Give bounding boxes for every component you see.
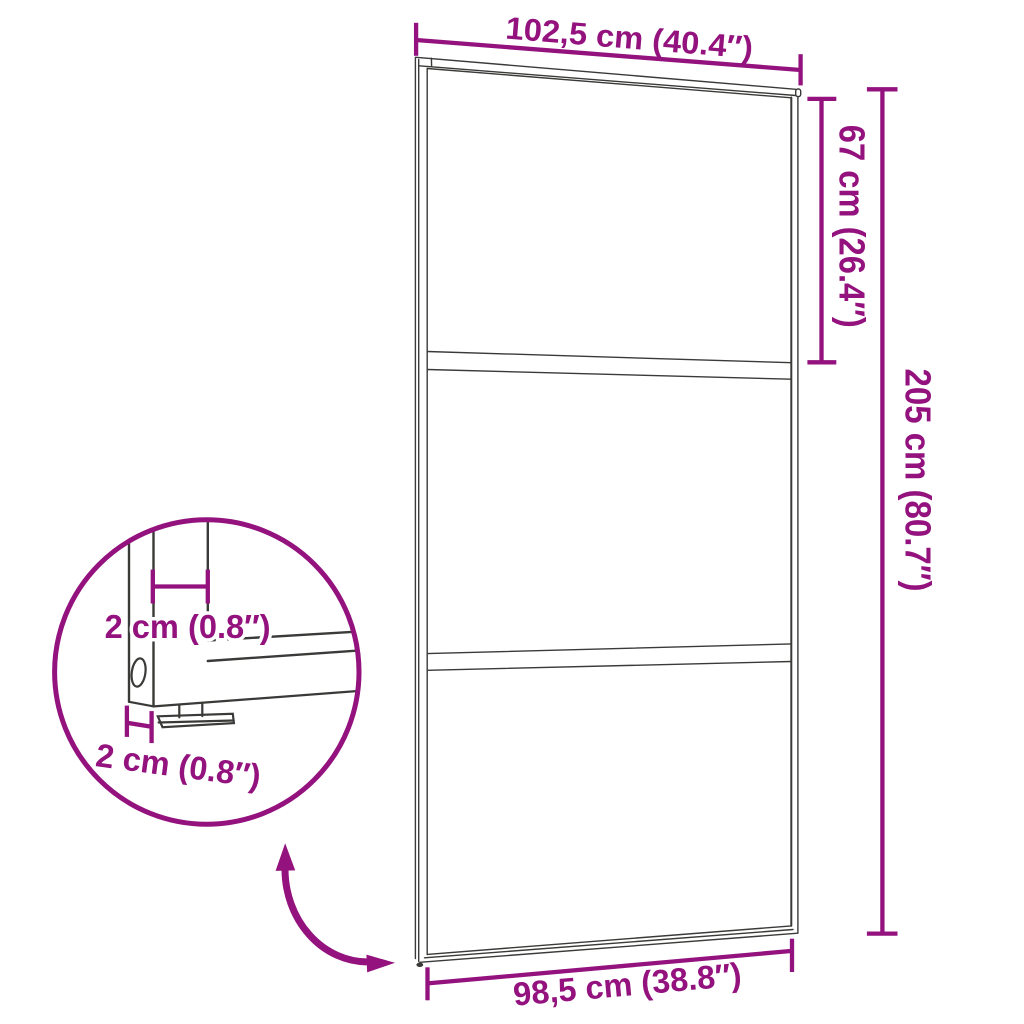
svg-text:67 cm (26.4″): 67 cm (26.4″) <box>831 125 872 328</box>
svg-text:205 cm (80.7″): 205 cm (80.7″) <box>897 369 938 592</box>
svg-text:2 cm (0.8″): 2 cm (0.8″) <box>105 608 271 645</box>
